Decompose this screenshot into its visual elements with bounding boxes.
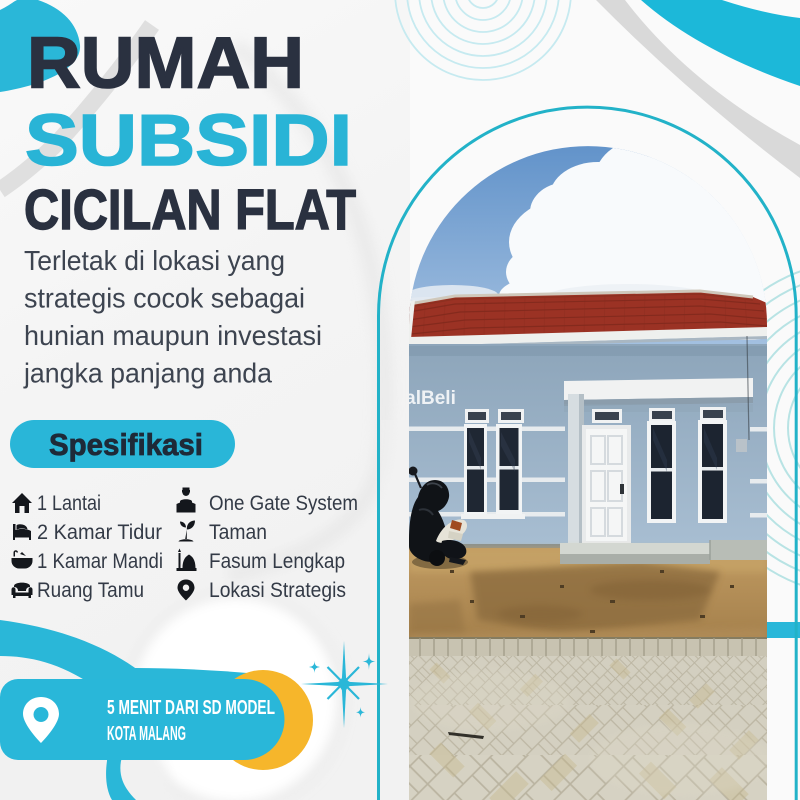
- svg-text:RUMAH: RUMAH: [27, 24, 304, 104]
- svg-text:5 MENIT DARI SD MODEL: 5 MENIT DARI SD MODEL: [107, 697, 275, 719]
- svg-text:Lokasi Strategis: Lokasi Strategis: [209, 579, 346, 602]
- svg-text:strategis cocok sebagai: strategis cocok sebagai: [24, 283, 305, 314]
- svg-text:2 Kamar Tidur: 2 Kamar Tidur: [37, 521, 162, 544]
- svg-text:One Gate System: One Gate System: [209, 492, 358, 515]
- svg-text:Fasum Lengkap: Fasum Lengkap: [209, 550, 345, 573]
- svg-text:CICILAN FLAT: CICILAN FLAT: [24, 178, 356, 242]
- svg-text:1 Lantai: 1 Lantai: [37, 492, 101, 515]
- svg-text:jangka panjang anda: jangka panjang anda: [23, 358, 272, 389]
- svg-text:1 Kamar Mandi: 1 Kamar Mandi: [37, 550, 163, 573]
- svg-text:Terletak di lokasi yang: Terletak di lokasi yang: [24, 245, 285, 276]
- svg-text:hunian maupun investasi: hunian maupun investasi: [24, 320, 322, 351]
- svg-text:KOTA MALANG: KOTA MALANG: [107, 723, 186, 745]
- svg-text:Ruang Tamu: Ruang Tamu: [37, 579, 144, 602]
- svg-text:Taman: Taman: [209, 521, 267, 544]
- svg-text:Spesifikasi: Spesifikasi: [49, 427, 203, 462]
- svg-text:SUBSIDI: SUBSIDI: [25, 101, 352, 181]
